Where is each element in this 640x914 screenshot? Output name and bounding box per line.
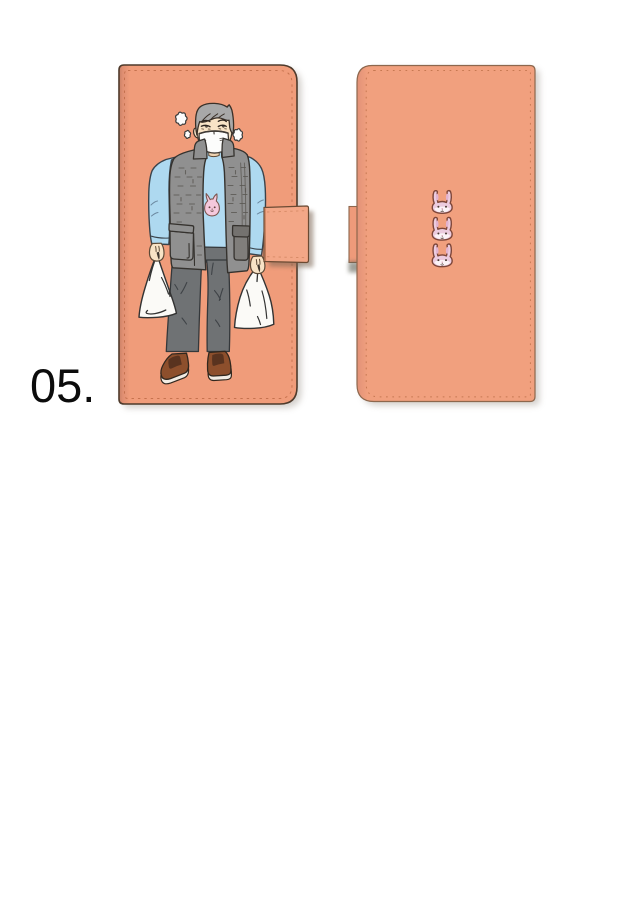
svg-text:05.: 05. [30, 359, 95, 412]
